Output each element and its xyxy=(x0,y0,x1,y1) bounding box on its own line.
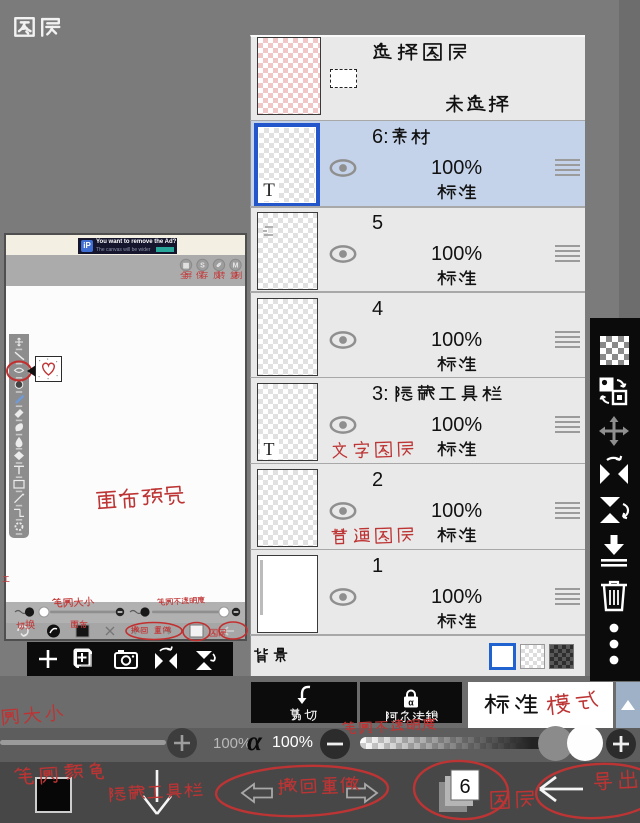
svg-text:存: 存 xyxy=(200,270,208,280)
svg-text:制: 制 xyxy=(234,270,242,280)
svg-text:换: 换 xyxy=(25,619,35,632)
svg-text:▦: ▦ xyxy=(183,263,190,270)
svg-text:M: M xyxy=(233,263,239,270)
svg-text:屏: 屏 xyxy=(184,271,192,280)
svg-text:S: S xyxy=(200,263,205,270)
svg-text:✐: ✐ xyxy=(216,262,222,270)
svg-text:转: 转 xyxy=(217,270,225,280)
svg-text:α: α xyxy=(408,698,414,708)
